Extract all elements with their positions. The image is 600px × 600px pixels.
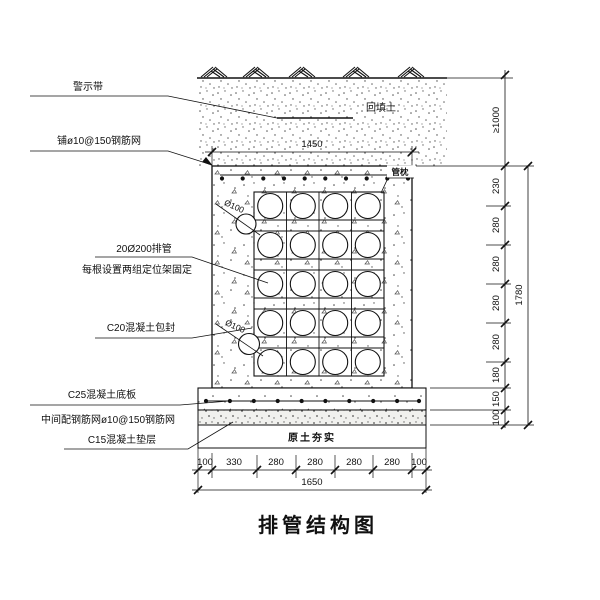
pipe-bank-cross-section: 回填土 Ø100 bbox=[0, 0, 600, 600]
cushion-label: C15混凝土垫层 bbox=[88, 433, 156, 446]
pipe-pillow-label: 管枕 bbox=[391, 167, 409, 177]
dim-cover-depth: ≥1000 bbox=[491, 107, 502, 133]
mid-mesh-label: 中间配钢筋网ø10@150钢筋网 bbox=[41, 413, 175, 426]
drawing-sheet: 回填土 Ø100 bbox=[0, 0, 600, 600]
compacted-soil-box: 原土夯实 bbox=[198, 425, 426, 448]
callout-top-mesh: 铺ø10@150钢筋网 bbox=[30, 134, 213, 166]
dim-b1: 330 bbox=[226, 457, 242, 468]
dim-b4: 280 bbox=[346, 457, 362, 468]
dim-b5: 280 bbox=[384, 457, 400, 468]
dim-b3: 280 bbox=[307, 457, 323, 468]
top-mesh-label: 铺ø10@150钢筋网 bbox=[57, 134, 141, 147]
dim-r4: 280 bbox=[491, 334, 502, 350]
callout-mid-mesh: 中间配钢筋网ø10@150钢筋网 bbox=[41, 413, 175, 426]
dim-top-width-value: 1450 bbox=[301, 139, 322, 150]
dim-r7: 100 bbox=[491, 410, 502, 426]
base-slab-label: C25混凝土底板 bbox=[68, 388, 136, 401]
backfill-region bbox=[197, 78, 513, 166]
dim-bottom-total: 1650 bbox=[301, 477, 322, 488]
pipe-bank-label-1: 20Ø200排管 bbox=[116, 242, 172, 255]
dim-b2: 280 bbox=[268, 457, 284, 468]
ground-surface-symbols bbox=[201, 67, 424, 77]
dim-b6: 100 bbox=[411, 457, 427, 468]
dim-b0: 100 bbox=[197, 457, 213, 468]
dim-r2: 280 bbox=[491, 256, 502, 272]
encasement-label: C20混凝土包封 bbox=[107, 321, 175, 334]
dim-r6: 150 bbox=[491, 391, 502, 407]
dim-right-total: 1780 bbox=[514, 284, 525, 305]
dim-bottom: 100 330 280 280 280 280 100 1650 bbox=[192, 448, 432, 494]
pipe-bank-label-2: 每根设置两组定位架固定 bbox=[82, 263, 192, 276]
base-slab bbox=[198, 388, 426, 410]
dim-r1: 280 bbox=[491, 217, 502, 233]
dim-r5: 180 bbox=[491, 367, 502, 383]
backfill-label: 回填土 bbox=[366, 101, 396, 114]
drawing-title: 排管结构图 bbox=[258, 513, 378, 537]
compacted-soil-label: 原土夯实 bbox=[288, 431, 336, 444]
dim-r3: 280 bbox=[491, 295, 502, 311]
dim-r0: 230 bbox=[491, 178, 502, 194]
warning-tape-label: 警示带 bbox=[73, 80, 103, 93]
